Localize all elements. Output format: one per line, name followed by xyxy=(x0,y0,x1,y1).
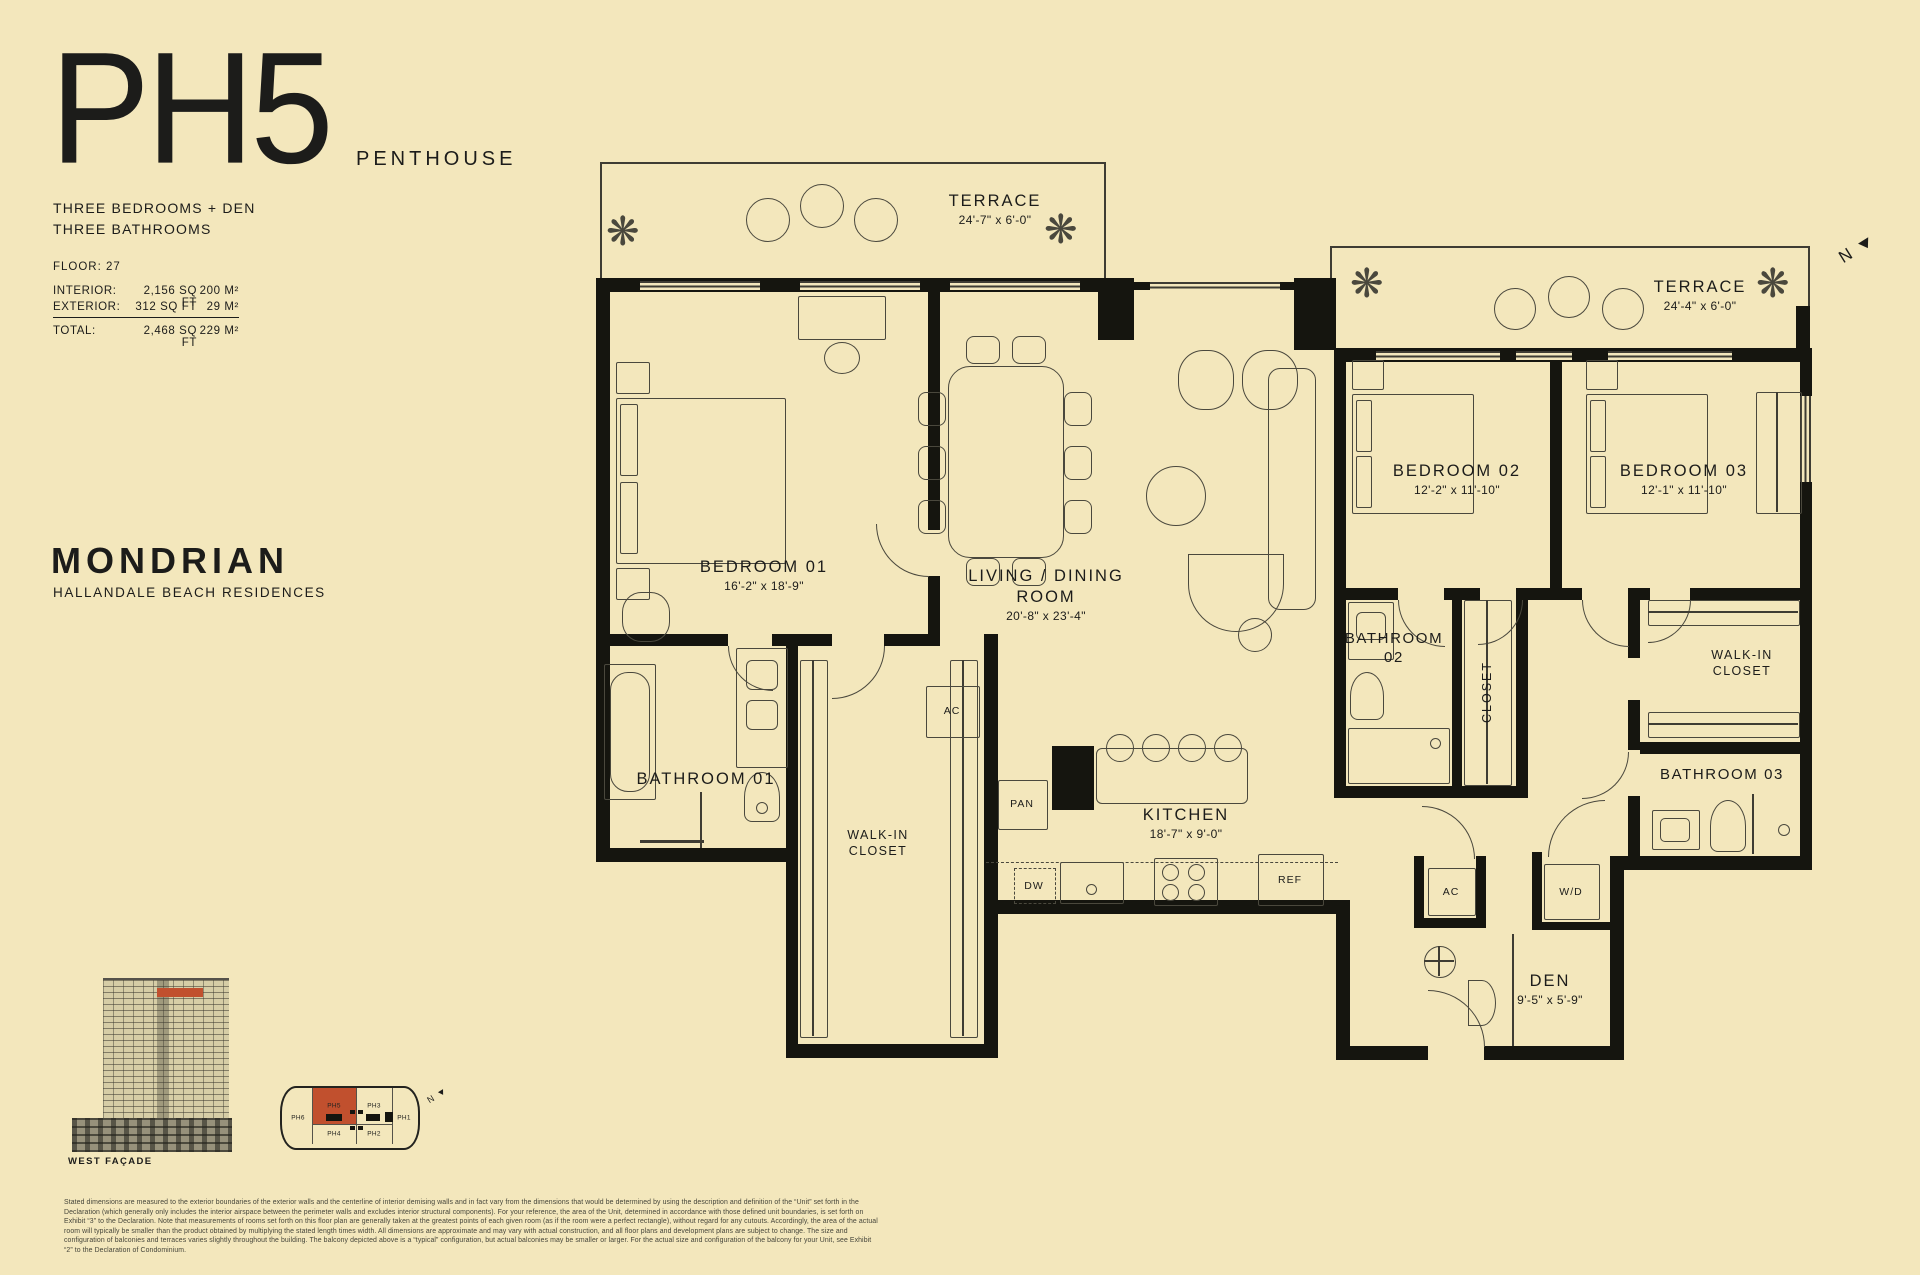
brand-logo: MONDRIAN xyxy=(51,540,289,582)
room-label-bathroom2: BATHROOM 02 xyxy=(1342,630,1446,668)
penthouse-floor-highlight xyxy=(157,988,203,997)
dining-chair xyxy=(1064,446,1092,480)
dishwasher-label: DW xyxy=(1024,880,1044,892)
faucet xyxy=(1086,884,1097,895)
nightstand xyxy=(1352,360,1384,390)
closet-rod xyxy=(1648,723,1798,725)
washer-dryer-label: W/D xyxy=(1559,886,1582,898)
door-arc xyxy=(832,646,885,699)
room-name: BEDROOM 02 xyxy=(1393,462,1521,481)
window xyxy=(640,281,760,290)
area-label: EXTERIOR: xyxy=(53,301,125,313)
toilet xyxy=(1710,800,1746,852)
brand-tagline: HALLANDALE BEACH RESIDENCES xyxy=(53,585,326,600)
north-arrow-icon xyxy=(1858,237,1873,251)
room-dims: 12'-2" x 11'-10" xyxy=(1393,483,1521,497)
plant-icon: ❋ xyxy=(1044,210,1078,250)
niche xyxy=(1468,980,1496,1026)
wall xyxy=(1614,856,1812,870)
wall xyxy=(1532,922,1616,930)
wall xyxy=(1524,588,1582,600)
window xyxy=(1516,351,1572,360)
wall-column xyxy=(1294,278,1336,350)
pillow xyxy=(1590,456,1606,508)
plant-icon: ❋ xyxy=(1350,264,1384,304)
area-metric: 29 M² xyxy=(197,301,239,313)
area-row-total: TOTAL: 2,468 SQ FT 229 M² xyxy=(53,325,239,349)
room-label-living: LIVING / DINING ROOM 20'-8" x 23'-4" xyxy=(941,566,1151,623)
wall xyxy=(596,848,798,862)
keyplan-core xyxy=(350,1126,355,1130)
room-name: DEN xyxy=(1517,972,1583,991)
keyplan-wall xyxy=(312,1124,393,1125)
floorplan-sheet: PH5 PENTHOUSE THREE BEDROOMS + DEN THREE… xyxy=(0,0,1920,1275)
ceiling-fan-symbol xyxy=(1424,946,1456,978)
wall xyxy=(1334,786,1528,798)
burner xyxy=(1188,884,1205,901)
closet-shelf xyxy=(800,660,828,1038)
stool xyxy=(1214,734,1242,762)
accent-chair xyxy=(1178,350,1234,410)
room-name: LIVING / DINING ROOM xyxy=(941,566,1151,607)
north-label: N xyxy=(1835,243,1857,267)
keyplan-unit-ph5: PH5 xyxy=(327,1103,341,1110)
closet-shelf xyxy=(1648,600,1800,626)
config-line-1: THREE BEDROOMS + DEN xyxy=(53,200,256,216)
unit-number: PH5 xyxy=(50,28,330,187)
den-divider-line xyxy=(1512,934,1514,1046)
wall xyxy=(928,576,940,638)
wall xyxy=(1550,348,1562,588)
sink xyxy=(746,660,778,690)
wall-column xyxy=(1052,746,1094,810)
dining-chair xyxy=(918,500,946,534)
wall xyxy=(1414,856,1424,926)
stool xyxy=(1142,734,1170,762)
kitchen-sink xyxy=(1060,862,1124,904)
sink xyxy=(1660,818,1690,842)
room-name: BEDROOM 03 xyxy=(1620,462,1748,481)
room-name: TERRACE xyxy=(1654,278,1747,297)
shower xyxy=(1348,728,1450,784)
burner xyxy=(1162,864,1179,881)
terrace-rail xyxy=(600,162,602,280)
config-line-2: THREE BATHROOMS xyxy=(53,221,212,237)
wardrobe xyxy=(1756,392,1802,514)
room-name: BATHROOM 01 xyxy=(636,770,775,789)
shower-head xyxy=(756,802,768,814)
room-label-closet: CLOSET xyxy=(1480,661,1494,723)
room-label-walkin-left: WALK-IN CLOSET xyxy=(830,828,926,859)
room-dims: 24'-4" x 6'-0" xyxy=(1654,299,1747,313)
unit-type-label: PENTHOUSE xyxy=(356,148,516,171)
keyplan-unit-ph6: PH6 xyxy=(291,1115,305,1122)
keyplan: PH6 PH5 PH3 PH1 PH4 PH2 N xyxy=(280,1082,450,1154)
room-label-den: DEN 9'-5" x 5'-9" xyxy=(1517,972,1583,1007)
keyplan-wall xyxy=(312,1088,313,1144)
area-row-exterior: EXTERIOR: 312 SQ FT 29 M² xyxy=(53,301,239,313)
legal-disclaimer: Stated dimensions are measured to the ex… xyxy=(64,1198,878,1255)
shower-head xyxy=(1778,824,1790,836)
shower-partition xyxy=(1752,794,1754,854)
wall xyxy=(772,634,832,646)
closet-rod xyxy=(812,660,814,1036)
nightstand xyxy=(1586,360,1618,390)
room-dims: 18'-7" x 9'-0" xyxy=(1143,827,1229,841)
keyplan-wall xyxy=(356,1088,357,1124)
terrace-rail xyxy=(1104,162,1106,280)
terrace-chair xyxy=(854,198,898,242)
pillow xyxy=(1590,400,1606,452)
area-sqft: 312 SQ FT xyxy=(125,301,197,313)
desk xyxy=(798,296,886,340)
burner xyxy=(1162,884,1179,901)
terrace-rail xyxy=(600,162,1106,164)
door-arc xyxy=(1582,600,1629,647)
nightstand xyxy=(616,362,650,394)
terrace-chair xyxy=(1548,276,1590,318)
room-name: KITCHEN xyxy=(1143,806,1229,825)
shower-head xyxy=(1430,738,1441,749)
room-label-bathroom3: BATHROOM 03 xyxy=(1660,766,1784,783)
window xyxy=(1608,351,1732,360)
wall xyxy=(1690,588,1812,600)
room-label-terrace2: TERRACE 24'-4" x 6'-0" xyxy=(1654,278,1747,313)
keyplan-unit-ph3: PH3 xyxy=(367,1103,381,1110)
area-label: TOTAL: xyxy=(53,325,125,349)
facade-caption: WEST FAÇADE xyxy=(68,1156,153,1167)
window xyxy=(1150,282,1280,290)
room-dims: 12'-1" x 11'-10" xyxy=(1620,483,1748,497)
wall xyxy=(1444,588,1480,600)
pantry-label: PAN xyxy=(1010,798,1034,810)
area-sqft: 2,468 SQ FT xyxy=(125,325,197,349)
room-name: BEDROOM 01 xyxy=(700,558,828,577)
terrace-chair xyxy=(1494,288,1536,330)
wall xyxy=(984,634,998,1058)
room-dims: 9'-5" x 5'-9" xyxy=(1517,993,1583,1007)
building-elevation-podium xyxy=(72,1118,232,1152)
wall xyxy=(1336,1046,1428,1060)
toilet xyxy=(1350,672,1384,720)
pillow xyxy=(620,482,638,554)
room-dims: 20'-8" x 23'-4" xyxy=(941,609,1151,623)
keyplan-core xyxy=(366,1114,380,1121)
keyplan-unit-ph4: PH4 xyxy=(327,1131,341,1138)
bath-mat xyxy=(640,840,704,843)
area-divider xyxy=(53,317,239,318)
chaise xyxy=(1188,554,1284,632)
dining-chair xyxy=(966,336,1000,364)
keyplan-core xyxy=(385,1112,393,1122)
wall xyxy=(1610,856,1624,1060)
plant-icon: ❋ xyxy=(1756,264,1790,304)
wall xyxy=(1334,348,1346,598)
wall xyxy=(1628,796,1640,856)
fan-cross xyxy=(1424,960,1454,962)
room-name: TERRACE xyxy=(949,192,1042,211)
keyplan-core xyxy=(358,1126,363,1130)
burner xyxy=(1188,864,1205,881)
wardrobe-rod xyxy=(1776,392,1778,512)
building-elevation-tower xyxy=(103,978,229,1122)
refrigerator-label: REF xyxy=(1278,874,1302,886)
wall xyxy=(1452,588,1462,796)
area-metric: 229 M² xyxy=(197,325,239,349)
terrace-chair xyxy=(746,198,790,242)
door-arc xyxy=(1422,806,1475,859)
keyplan-wall xyxy=(356,1124,357,1144)
sink xyxy=(746,700,778,730)
room-name: WALK-IN CLOSET xyxy=(830,828,926,859)
room-name: BATHROOM 03 xyxy=(1660,766,1784,783)
cooktop xyxy=(1154,858,1218,906)
wall xyxy=(1484,1046,1624,1060)
stool xyxy=(1178,734,1206,762)
side-table xyxy=(1238,618,1272,652)
stool xyxy=(1106,734,1134,762)
wall xyxy=(1640,742,1812,754)
keyplan-unit-ph1: PH1 xyxy=(397,1115,411,1122)
terrace-chair xyxy=(1602,288,1644,330)
desk-chair xyxy=(824,342,860,374)
wall xyxy=(1796,306,1810,350)
room-label-bedroom3: BEDROOM 03 12'-1" x 11'-10" xyxy=(1620,462,1748,497)
closet-rod xyxy=(1648,611,1798,613)
room-label-kitchen: KITCHEN 18'-7" x 9'-0" xyxy=(1143,806,1229,841)
window xyxy=(950,281,1080,290)
room-label-terrace1: TERRACE 24'-7" x 6'-0" xyxy=(949,192,1042,227)
room-label-bathroom1: BATHROOM 01 xyxy=(636,770,775,789)
wall xyxy=(1476,856,1486,926)
coffee-table xyxy=(1146,466,1206,526)
wall xyxy=(884,634,940,646)
room-label-bedroom1: BEDROOM 01 16'-2" x 18'-9" xyxy=(700,558,828,593)
armchair xyxy=(622,592,670,642)
keyplan-north-indicator: N xyxy=(423,1082,449,1107)
keyplan-outline: PH6 PH5 PH3 PH1 PH4 PH2 xyxy=(280,1086,420,1150)
wall xyxy=(1628,588,1650,600)
room-dims: 24'-7" x 6'-0" xyxy=(949,213,1042,227)
window xyxy=(1376,351,1500,360)
pillow xyxy=(1356,456,1372,508)
closet-shelf xyxy=(1648,712,1800,738)
dining-chair xyxy=(918,392,946,426)
room-name: BATHROOM 02 xyxy=(1342,630,1446,668)
wall xyxy=(1334,588,1398,600)
north-indicator: N xyxy=(1835,232,1875,267)
room-name: WALK-IN CLOSET xyxy=(1694,648,1790,679)
wall xyxy=(1628,600,1640,658)
room-label-walkin-right: WALK-IN CLOSET xyxy=(1694,648,1790,679)
wall xyxy=(1334,588,1346,798)
ac-label: AC xyxy=(944,705,961,717)
door-arc xyxy=(1582,752,1629,799)
window xyxy=(800,281,920,290)
keyplan-core xyxy=(350,1110,355,1114)
wall xyxy=(786,848,798,1058)
wall xyxy=(1532,852,1542,928)
north-label: N xyxy=(425,1093,436,1105)
keyplan-core xyxy=(326,1114,342,1121)
door-arc xyxy=(1548,800,1605,857)
wall-column xyxy=(1098,278,1134,340)
terrace-chair xyxy=(800,184,844,228)
ac-label: AC xyxy=(1443,886,1460,898)
dining-chair xyxy=(918,446,946,480)
wall xyxy=(1336,900,1350,1060)
room-label-bedroom2: BEDROOM 02 12'-2" x 11'-10" xyxy=(1393,462,1521,497)
keyplan-core xyxy=(358,1110,363,1114)
dining-chair xyxy=(1012,336,1046,364)
bed xyxy=(616,398,786,564)
dining-chair xyxy=(1064,392,1092,426)
wall xyxy=(786,1044,998,1058)
keyplan-unit-ph2: PH2 xyxy=(367,1131,381,1138)
floor-label: FLOOR: 27 xyxy=(53,261,121,273)
wall xyxy=(1628,700,1640,750)
pillow xyxy=(1356,400,1372,452)
dining-table xyxy=(948,366,1064,558)
dining-chair xyxy=(1064,500,1092,534)
terrace-rail xyxy=(1330,246,1810,248)
plant-icon: ❋ xyxy=(606,212,640,252)
pillow xyxy=(620,404,638,476)
room-dims: 16'-2" x 18'-9" xyxy=(700,579,828,593)
north-arrow-icon xyxy=(438,1089,446,1096)
